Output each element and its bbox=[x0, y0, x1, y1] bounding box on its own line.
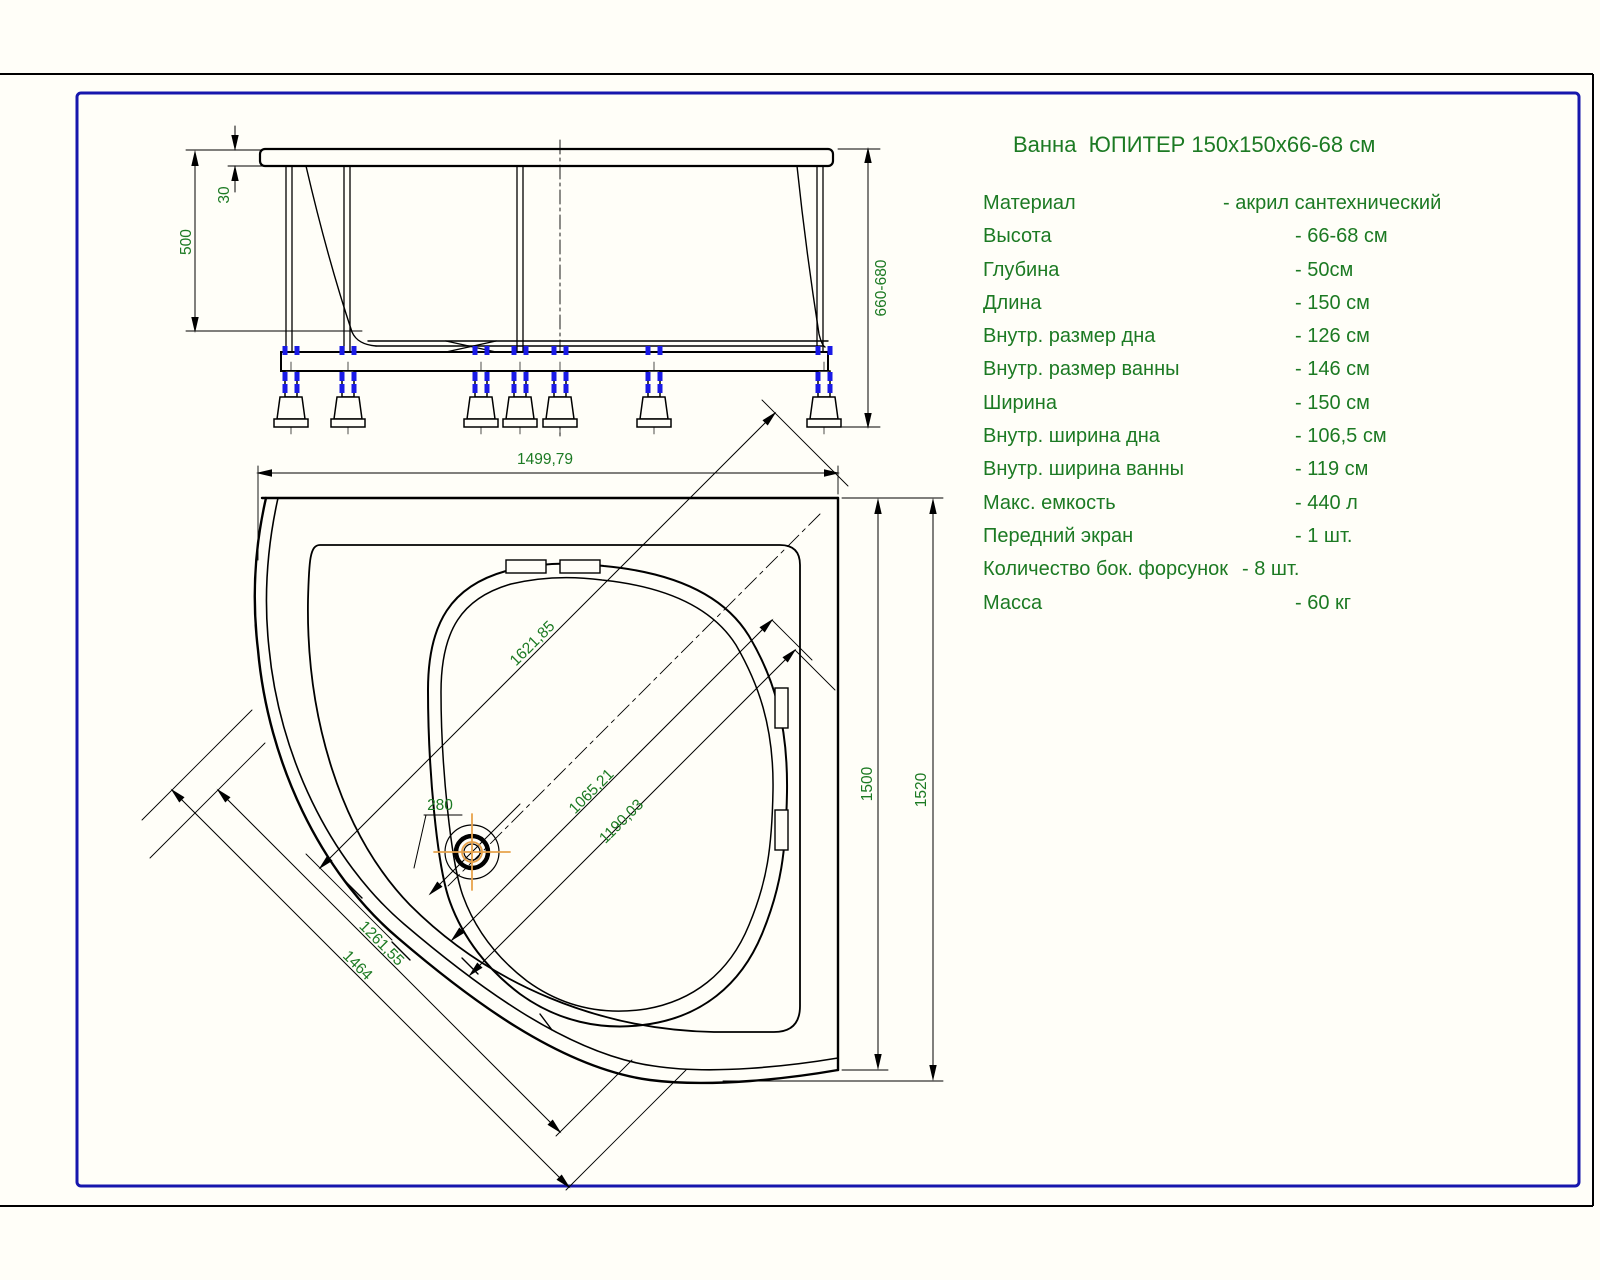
spec-label: Длина bbox=[983, 292, 1295, 315]
dim-side-label: 1500 bbox=[859, 766, 876, 801]
spec-label: Внутр. размер ванны bbox=[983, 358, 1295, 381]
spec-value: - 150 см bbox=[1295, 292, 1370, 315]
spec-value: - 150 см bbox=[1295, 392, 1370, 415]
spec-row: Высота - 66-68 см bbox=[983, 225, 1568, 258]
spec-row: Количество бок. форсунок - 8 шт. bbox=[983, 558, 1568, 591]
front-view: 500 30 660-680 bbox=[178, 126, 890, 437]
spec-value: - 119 см bbox=[1295, 458, 1368, 481]
spec-row: Материал - акрил сантехнический bbox=[983, 192, 1568, 225]
spec-list: Материал - акрил сантехнический Высота -… bbox=[983, 192, 1568, 625]
plan-outline bbox=[255, 498, 838, 1083]
bath-rim bbox=[260, 149, 833, 166]
spec-value: - 66-68 см bbox=[1295, 225, 1388, 248]
spec-label: Передний экран bbox=[983, 525, 1295, 548]
spec-label: Высота bbox=[983, 225, 1295, 248]
spec-value: - 106,5 см bbox=[1295, 425, 1387, 448]
tub-profile bbox=[306, 166, 828, 352]
spec-label: Макс. емкость bbox=[983, 492, 1295, 515]
bowl bbox=[428, 564, 787, 1027]
plan-view: 1499,79 1500 1520 1621,85 1065,21 1190,0… bbox=[142, 400, 943, 1190]
spec-label: Внутр. ширина дна bbox=[983, 425, 1295, 448]
spec-row: Масса - 60 кг bbox=[983, 592, 1568, 625]
dim-depth-label: 500 bbox=[178, 229, 195, 255]
spec-label: Внутр. размер дна bbox=[983, 325, 1295, 348]
spec-row: Внутр. размер ванны - 146 см bbox=[983, 358, 1568, 391]
dim-width-label: 1499,79 bbox=[517, 451, 573, 468]
dim-inner-diag-label: 1190,03 bbox=[596, 796, 647, 847]
dim-inner-bottom-diag-label: 1065,21 bbox=[566, 766, 618, 818]
spec-value: - 50см bbox=[1295, 259, 1353, 282]
spec-row: Передний экран - 1 шт. bbox=[983, 525, 1568, 558]
spec-value: - акрил сантехнический bbox=[1223, 192, 1441, 215]
dim-drain-offset-label: 280 bbox=[427, 797, 453, 814]
spec-label: Ширина bbox=[983, 392, 1295, 415]
deck-contour bbox=[308, 545, 800, 1032]
spec-row: Внутр. ширина дна - 106,5 см bbox=[983, 425, 1568, 458]
spec-panel: Ванна ЮПИТЕР 150x150x66-68 см Материал -… bbox=[983, 132, 1568, 625]
spec-row: Внутр. размер дна - 126 см bbox=[983, 325, 1568, 358]
spec-label: Масса bbox=[983, 592, 1295, 615]
spec-label: Количество бок. форсунок bbox=[983, 558, 1228, 581]
spec-value: - 146 см bbox=[1295, 358, 1370, 381]
frame-posts bbox=[286, 166, 823, 352]
spec-label: Материал bbox=[983, 192, 1223, 215]
spec-value: - 1 шт. bbox=[1295, 525, 1352, 548]
spec-value: - 440 л bbox=[1295, 492, 1358, 515]
spec-value: - 126 см bbox=[1295, 325, 1370, 348]
jet-markers bbox=[344, 560, 788, 1030]
spec-label: Внутр. ширина ванны bbox=[983, 458, 1295, 481]
spec-row: Макс. емкость - 440 л bbox=[983, 492, 1568, 525]
spec-row: Длина - 150 см bbox=[983, 292, 1568, 325]
spec-row: Внутр. ширина ванны - 119 см bbox=[983, 458, 1568, 491]
front-edge-inner bbox=[266, 498, 838, 1070]
spec-value: - 60 кг bbox=[1295, 592, 1351, 615]
dim-rim-label: 30 bbox=[216, 186, 233, 204]
spec-row: Глубина - 50см bbox=[983, 259, 1568, 292]
spec-row: Ширина - 150 см bbox=[983, 392, 1568, 425]
dim-height-label: 660-680 bbox=[873, 259, 890, 316]
dim-overall-label: 1520 bbox=[913, 772, 930, 807]
drawing-title: Ванна ЮПИТЕР 150x150x66-68 см bbox=[983, 132, 1568, 158]
spec-value: - 8 шт. bbox=[1242, 558, 1299, 581]
dim-diagonal-label: 1621,85 bbox=[507, 618, 559, 670]
spec-label: Глубина bbox=[983, 259, 1295, 282]
dim-front-chord-outer-label: 1464 bbox=[339, 947, 376, 984]
